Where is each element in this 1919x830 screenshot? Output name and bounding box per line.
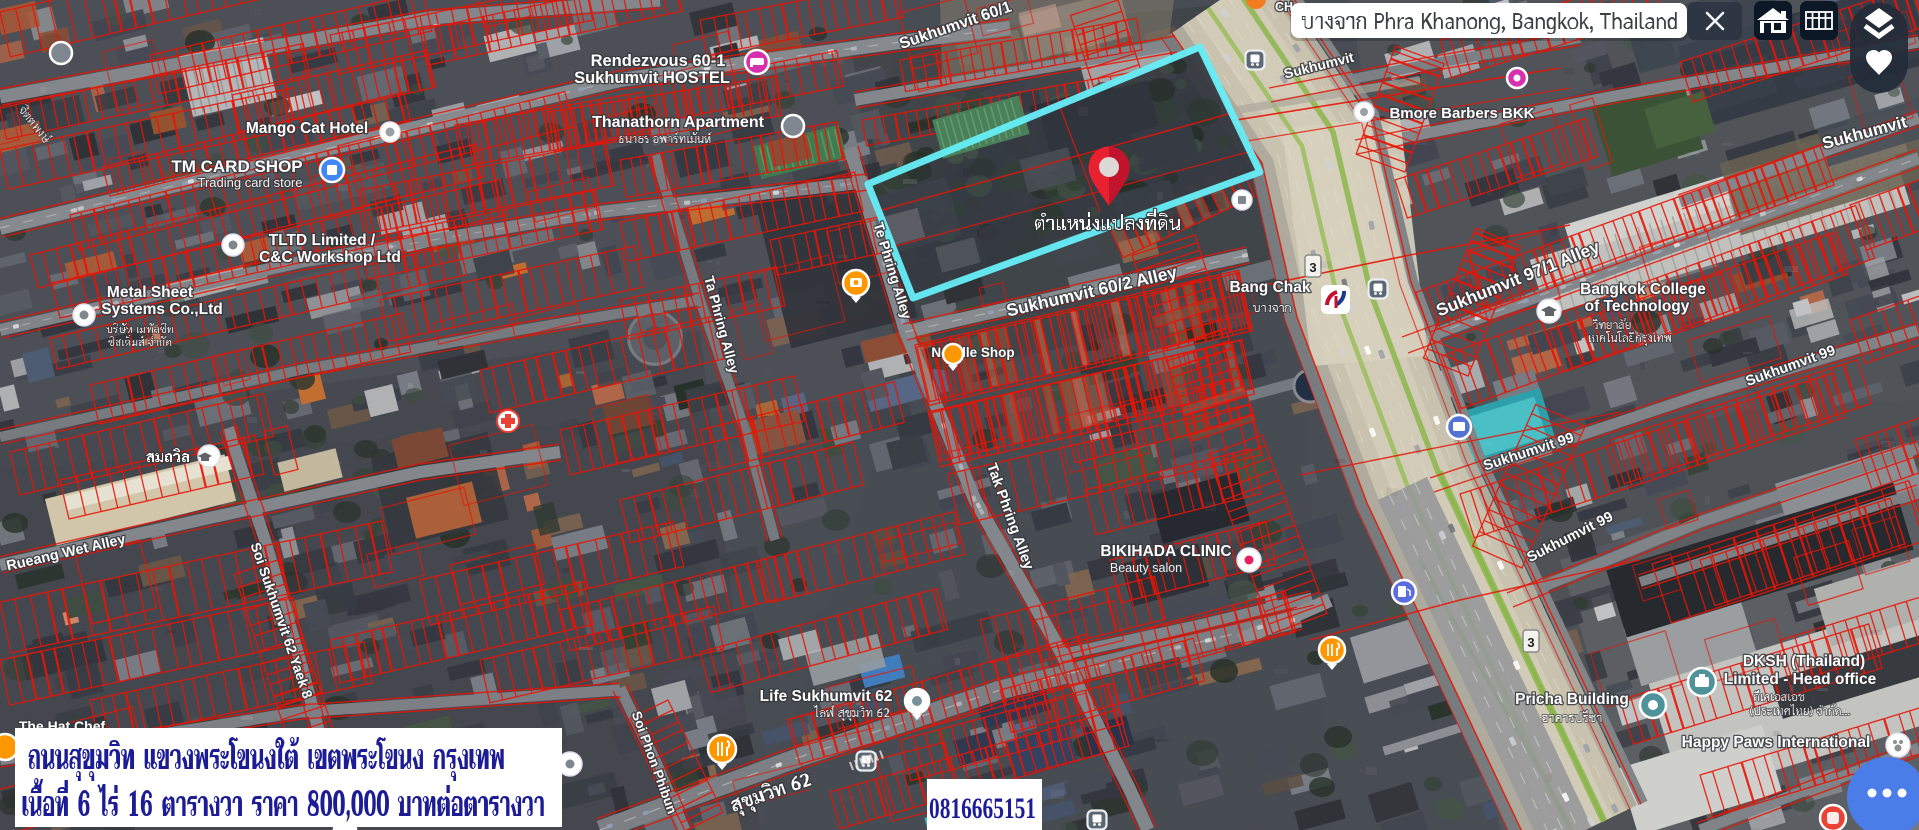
svg-text:TM CARD SHOP: TM CARD SHOP [171,157,302,176]
svg-text:Beauty salon: Beauty salon [1110,561,1182,575]
svg-text:of Technology: of Technology [1585,298,1690,315]
svg-text:Pricha Building: Pricha Building [1515,691,1629,708]
svg-text:Bmore Barbers BKK: Bmore Barbers BKK [1389,105,1534,122]
svg-text:Metal Sheet: Metal Sheet [107,284,193,301]
svg-text:Happy Paws International: Happy Paws International [1682,734,1871,751]
svg-text:Rendezvous 60-1: Rendezvous 60-1 [591,52,726,70]
svg-text:0816665151: 0816665151 [929,792,1036,825]
svg-text:TLTD Limited /: TLTD Limited / [269,232,376,249]
svg-text:Life Sukhumvit 62: Life Sukhumvit 62 [760,688,893,705]
svg-text:C&C Workshop Ltd: C&C Workshop Ltd [259,249,401,266]
svg-text:Sukhumvit HOSTEL: Sukhumvit HOSTEL [574,69,730,87]
svg-text:Limited - Head office: Limited - Head office [1724,671,1877,688]
svg-text:Mango Cat Hotel: Mango Cat Hotel [246,120,368,137]
svg-text:3: 3 [1527,635,1534,650]
svg-text:3: 3 [1309,260,1316,275]
svg-text:Systems Co.,Ltd: Systems Co.,Ltd [101,301,222,318]
svg-text:Thanathorn Apartment: Thanathorn Apartment [592,114,765,131]
svg-text:Trading card store: Trading card store [197,175,302,190]
svg-text:BIKIHADA CLINIC: BIKIHADA CLINIC [1100,543,1231,560]
